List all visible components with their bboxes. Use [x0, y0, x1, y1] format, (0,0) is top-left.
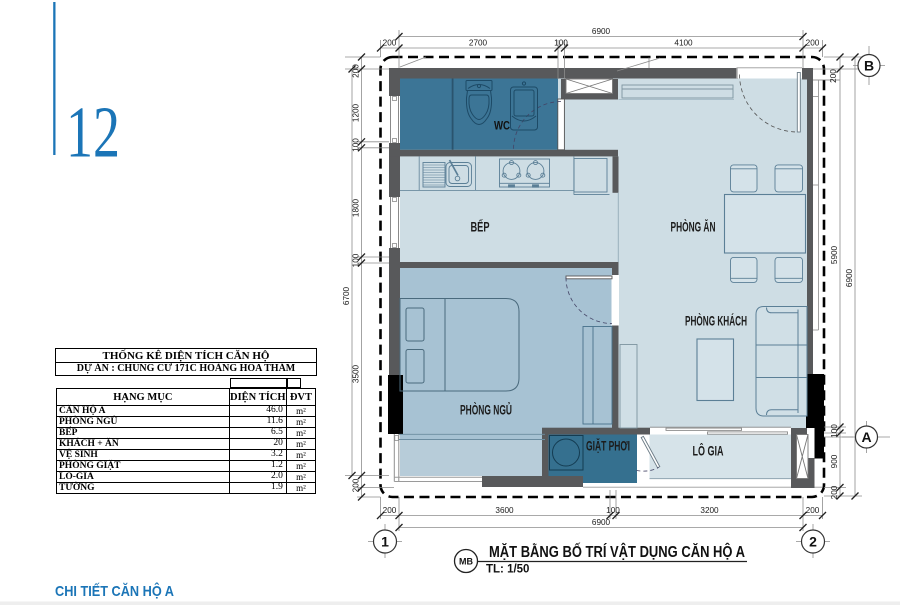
svg-text:200: 200: [352, 64, 361, 78]
svg-text:1: 1: [381, 534, 389, 550]
svg-text:3600: 3600: [495, 506, 514, 515]
svg-text:6700: 6700: [342, 286, 351, 305]
svg-text:12: 12: [66, 92, 120, 173]
svg-text:MẶT BẰNG BỐ TRÍ VẬT DỤNG CĂN H: MẶT BẰNG BỐ TRÍ VẬT DỤNG CĂN HỘ A: [489, 543, 745, 561]
svg-text:1800: 1800: [352, 198, 361, 217]
svg-text:1200: 1200: [352, 103, 361, 122]
svg-text:100: 100: [554, 39, 568, 48]
svg-text:BẾP: BẾP: [471, 220, 490, 235]
svg-text:100: 100: [830, 424, 839, 438]
svg-text:PHÒNG NGỦ: PHÒNG NGỦ: [460, 403, 512, 418]
svg-text:2700: 2700: [469, 39, 488, 48]
svg-text:5900: 5900: [830, 245, 839, 264]
svg-text:PHÒNG KHÁCH: PHÒNG KHÁCH: [685, 314, 747, 329]
svg-text:100: 100: [352, 253, 361, 267]
svg-text:WC: WC: [494, 121, 510, 133]
svg-text:TL: 1/50: TL: 1/50: [486, 564, 529, 576]
svg-text:100: 100: [606, 506, 620, 515]
svg-text:200: 200: [829, 69, 838, 83]
svg-text:200: 200: [806, 39, 820, 48]
svg-text:PHÒNG ĂN: PHÒNG ĂN: [671, 220, 716, 235]
svg-text:200: 200: [806, 506, 820, 515]
svg-text:6900: 6900: [845, 268, 854, 287]
svg-text:6900: 6900: [592, 518, 611, 527]
svg-text:3200: 3200: [700, 506, 719, 515]
svg-text:900: 900: [830, 454, 839, 468]
svg-text:LÔ GIA: LÔ GIA: [693, 444, 724, 459]
svg-text:3500: 3500: [352, 364, 361, 383]
svg-text:200: 200: [383, 506, 397, 515]
svg-text:200: 200: [830, 485, 839, 499]
svg-text:6900: 6900: [592, 27, 611, 36]
svg-text:MB: MB: [459, 557, 473, 567]
svg-text:2: 2: [809, 534, 817, 550]
svg-text:GIẶT PHƠI: GIẶT PHƠI: [586, 439, 630, 454]
svg-text:A: A: [861, 429, 871, 445]
svg-text:200: 200: [383, 39, 397, 48]
svg-text:100: 100: [352, 138, 361, 152]
svg-text:CHI TIẾT CĂN HỘ A: CHI TIẾT CĂN HỘ A: [55, 582, 174, 600]
svg-text:4100: 4100: [674, 39, 693, 48]
svg-text:B: B: [864, 58, 874, 74]
svg-text:200: 200: [352, 478, 361, 492]
